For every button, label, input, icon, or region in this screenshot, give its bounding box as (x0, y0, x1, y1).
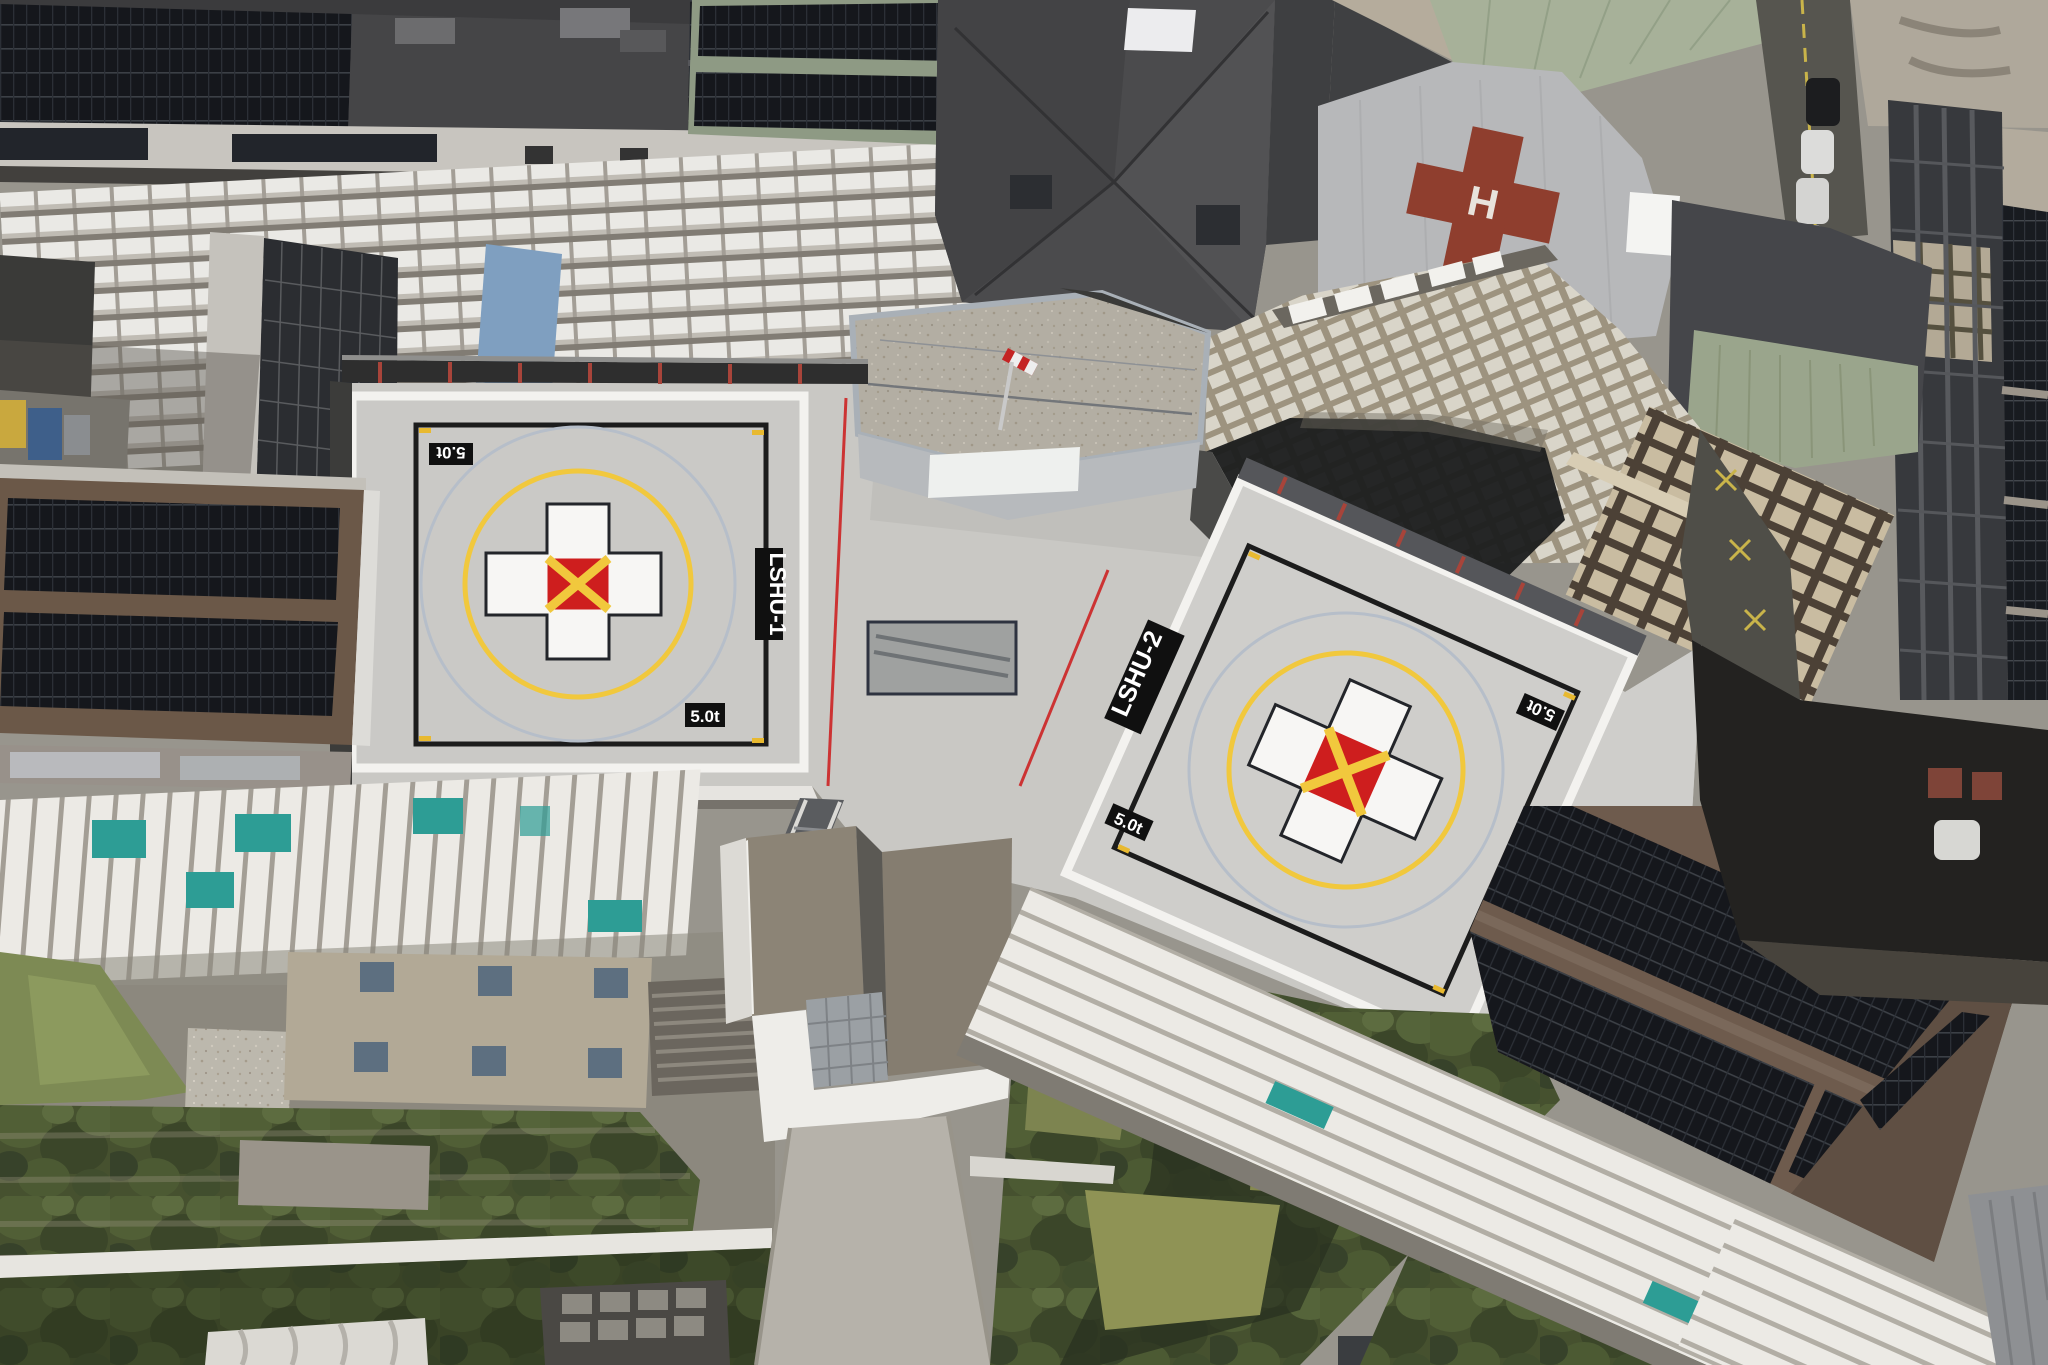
svg-text:5.0t: 5.0t (690, 707, 720, 726)
svg-text:5.0t: 5.0t (436, 443, 466, 462)
svg-text:LSHU-1: LSHU-1 (765, 552, 791, 635)
